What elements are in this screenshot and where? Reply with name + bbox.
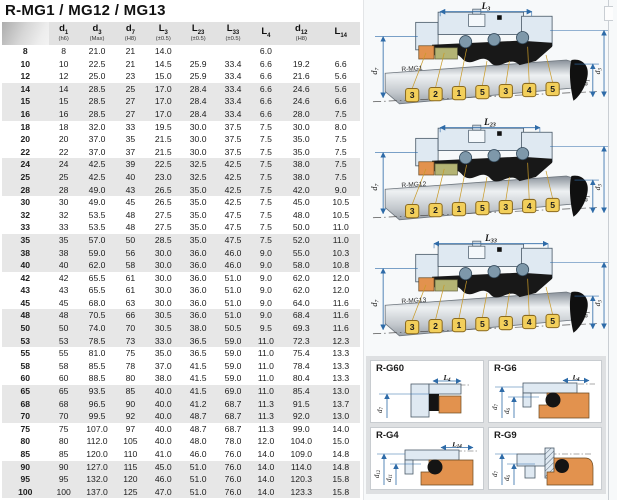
value-cell: 36.5 [181,347,215,360]
value-cell: 93.5 [79,385,115,398]
value-cell: 7.5 [322,158,361,171]
value-cell: 58 [115,259,145,272]
value-cell: 76.0 [215,486,250,499]
value-cell: 33.4 [215,83,250,96]
value-cell: 137.0 [79,486,115,499]
value-cell: 27 [115,95,145,108]
size-cell: 32 [2,209,49,222]
dim-label-L3: L3 [481,2,491,13]
value-cell: 7.5 [251,221,281,234]
value-cell: 36.5 [181,335,215,348]
value-cell: 13.0 [322,385,361,398]
value-cell: 28.4 [181,83,215,96]
value-cell: 33.0 [146,335,181,348]
value-cell: 48.0 [281,209,321,222]
dim-label-d3: d3 [593,184,604,191]
dim-label-L4: L4 [442,375,451,383]
value-cell: 6.6 [251,108,281,121]
size-cell: 38 [2,247,49,260]
value-cell: 75 [115,347,145,360]
svg-text:3: 3 [503,86,508,96]
size-cell: 16 [2,108,49,121]
value-cell: 35 [115,133,145,146]
value-cell: 37.5 [215,133,250,146]
value-cell: 32.0 [79,121,115,134]
value-cell: 11.0 [251,360,281,373]
value-cell: 43 [115,184,145,197]
value-cell: 9.0 [251,272,281,285]
value-cell: 27.5 [146,209,181,222]
value-cell: 11.0 [251,385,281,398]
diagram-r-mg13: L33 d7 d1 d3 R-MG13 32 15 34 5 [366,234,612,348]
value-cell: 99.0 [281,423,321,436]
value-cell: 55 [49,347,79,360]
value-cell: 9.0 [251,284,281,297]
dim-label-d6: d6 [503,407,512,414]
value-cell: 13.0 [322,410,361,423]
panel-label: R-G6 [489,361,601,375]
size-cell: 15 [2,95,49,108]
value-cell: 85.5 [79,360,115,373]
value-cell: 7.5 [322,146,361,159]
value-cell: 76.0 [215,448,250,461]
value-cell: 78 [115,360,145,373]
size-cell: 14 [2,83,49,96]
value-cell: 30.0 [146,284,181,297]
value-cell: 25 [49,171,79,184]
svg-text:2: 2 [433,321,438,331]
value-cell: 47.0 [146,486,181,499]
value-cell: 9.0 [251,309,281,322]
value-cell: 42 [49,272,79,285]
value-cell: 10.5 [322,196,361,209]
dim-label-L4: L4 [571,375,580,383]
size-cell: 50 [2,322,49,335]
value-cell: 28.5 [79,108,115,121]
size-cell: 65 [2,385,49,398]
value-cell: 23.0 [146,171,181,184]
value-cell: 60 [49,372,79,385]
value-cell: 40.0 [146,435,181,448]
svg-text:5: 5 [550,84,555,94]
value-cell: 24.6 [281,83,321,96]
value-cell: 68.7 [215,423,250,436]
value-cell: 19.2 [281,58,321,71]
value-cell: 14.8 [322,461,361,474]
value-cell: 33 [49,221,79,234]
svg-text:2: 2 [433,205,438,215]
size-cell: 85 [2,448,49,461]
value-cell: 14.8 [322,448,361,461]
value-cell: 40.0 [146,410,181,423]
value-cell: 33.4 [215,95,250,108]
value-cell: 90 [115,398,145,411]
value-cell: 12.0 [322,272,361,285]
panel-label: R-G60 [371,361,483,375]
corner-cell [2,22,49,45]
value-cell: 40 [115,171,145,184]
value-cell: 15.0 [146,70,181,83]
value-cell: 13.3 [322,360,361,373]
value-cell: 6.6 [322,95,361,108]
table-row: 9595132.012046.051.076.014.0120.315.8 [2,473,360,486]
svg-text:5: 5 [480,87,485,97]
value-cell: 59.0 [215,347,250,360]
value-cell: 35.0 [146,347,181,360]
value-cell: 48 [49,309,79,322]
value-cell: 14.0 [251,473,281,486]
value-cell: 114.0 [281,461,321,474]
value-cell: 36.0 [181,309,215,322]
diagram-r-mg1: L3 d7 d1 d3 R-MG1 32 15 34 5 [366,2,612,116]
table-row: 484870.56630.536.051.09.068.411.6 [2,309,360,322]
dim-label-d6: d6 [503,474,512,481]
size-cell: 10 [2,58,49,71]
value-cell: 28.5 [79,95,115,108]
size-cell: 22 [2,146,49,159]
value-cell: 41.5 [181,385,215,398]
value-cell: 30.0 [146,272,181,285]
value-cell: 37.0 [79,146,115,159]
svg-text:5: 5 [550,316,555,326]
value-cell: 100 [49,486,79,499]
value-cell: 9.0 [251,297,281,310]
value-cell: 80.4 [281,372,321,385]
dim-label-L23: L23 [483,118,496,129]
value-cell: 12.0 [322,284,361,297]
value-cell: 73 [115,335,145,348]
size-cell: 95 [2,473,49,486]
model-label: R-MG13 [401,297,427,305]
value-cell: 36.0 [181,272,215,285]
value-cell: 51.0 [215,272,250,285]
value-cell: 78.5 [79,335,115,348]
value-cell: 10.5 [322,209,361,222]
value-cell: 61 [115,284,145,297]
table-row: 454568.06330.036.051.09.064.011.6 [2,297,360,310]
size-cell: 30 [2,196,49,209]
value-cell: 11.3 [251,398,281,411]
size-cell: 8 [2,45,49,58]
value-cell: 92 [115,410,145,423]
value-cell: 33.4 [215,58,250,71]
value-cell: 65.5 [79,272,115,285]
table-row: 8080112.010540.048.078.012.0104.015.0 [2,435,360,448]
dim-label-d3: d3 [593,68,604,75]
value-cell: 80 [115,372,145,385]
value-cell: 59.0 [215,335,250,348]
value-cell: 10.3 [322,247,361,260]
value-cell: 8.0 [322,121,361,134]
value-cell: 11.0 [322,234,361,247]
col-L3: L3(±0.5) [146,22,181,45]
table-row: 121225.02315.025.933.46.621.65.6 [2,70,360,83]
value-cell: 69.0 [215,385,250,398]
value-cell: 32 [49,209,79,222]
value-cell: 70.5 [79,309,115,322]
table-row: 585885.57837.041.559.011.078.413.3 [2,360,360,373]
value-cell: 10 [49,58,79,71]
value-cell: 52.0 [281,234,321,247]
value-cell: 37.5 [215,121,250,134]
value-cell: 21 [115,58,145,71]
svg-text:3: 3 [410,90,415,100]
value-cell [215,45,250,58]
value-cell: 51.0 [215,309,250,322]
size-cell: 90 [2,461,49,474]
value-cell: 46.0 [146,473,181,486]
value-cell: 69.3 [281,322,321,335]
value-cell: 7.5 [251,158,281,171]
value-cell: 18 [49,121,79,134]
value-cell: 41.5 [181,360,215,373]
value-cell: 51.0 [215,297,250,310]
value-cell: 7.5 [322,171,361,184]
value-cell: 36.0 [181,259,215,272]
value-cell: 33 [115,121,145,134]
value-cell: 22 [49,146,79,159]
value-cell: 11.6 [322,309,361,322]
size-cell: 33 [2,221,49,234]
value-cell: 15.0 [322,435,361,448]
dimension-table: d1(h6) d3(Max) d7(H8) L3(±0.5) L23(±0.5)… [2,22,360,498]
value-cell: 30.0 [181,133,215,146]
value-cell: 74.0 [79,322,115,335]
value-cell: 11.0 [251,372,281,385]
value-cell: 51.0 [181,486,215,499]
col-d12: d12(H8) [281,22,321,45]
dim-label-d12: d12 [373,469,382,478]
value-cell: 49.0 [79,196,115,209]
value-cell: 125 [115,486,145,499]
value-cell: 28.4 [181,108,215,121]
seat-panel-grid: R-G60 L4 d7 R-G6 [366,356,606,494]
table-row: 333353.54827.535.047.57.550.011.0 [2,221,360,234]
dim-label-d11: d11 [385,474,394,482]
dim-label-d7: d7 [376,406,385,413]
value-cell: 35.0 [181,196,215,209]
value-cell: 21.0 [79,45,115,58]
col-L14: L14 [322,22,361,45]
value-cell: 7.5 [322,108,361,121]
value-cell: 45.0 [146,461,181,474]
value-cell: 112.0 [79,435,115,448]
value-cell: 14.0 [146,45,181,58]
size-cell: 55 [2,347,49,360]
value-cell: 32.5 [181,171,215,184]
table-row: 8585120.011041.046.076.014.0109.014.8 [2,448,360,461]
value-cell: 37.0 [79,133,115,146]
value-cell: 22.5 [146,158,181,171]
dim-label-d7: d7 [370,184,381,191]
value-cell: 47.5 [215,209,250,222]
value-cell: 28.4 [181,95,215,108]
size-cell: 60 [2,372,49,385]
value-cell: 120 [115,473,145,486]
value-cell: 30.0 [146,259,181,272]
seat-drawing-r-g9: d7 d6 [489,442,601,488]
value-cell: 40.0 [146,385,181,398]
value-cell: 50.0 [281,221,321,234]
value-cell: 9.0 [251,247,281,260]
value-cell: 38.0 [281,158,321,171]
value-cell: 110 [115,448,145,461]
size-cell: 40 [2,259,49,272]
value-cell: 6.6 [251,58,281,71]
value-cell: 26.5 [146,184,181,197]
value-cell: 35.0 [281,133,321,146]
size-cell: 68 [2,398,49,411]
value-cell: 75 [49,423,79,436]
value-cell: 41.2 [181,398,215,411]
value-cell: 70 [49,410,79,423]
diagram-r-mg12: L23 d7 d1 d3 R-MG12 32 15 34 5 [366,118,612,232]
value-cell: 107.0 [79,423,115,436]
value-cell: 17.0 [146,83,181,96]
table-row: 383859.05630.036.046.09.055.010.3 [2,247,360,260]
value-cell: 30.0 [281,121,321,134]
seat-drawing-r-g6: L4 d7 d6 [489,375,601,421]
value-cell: 41.0 [146,448,181,461]
value-cell: 37.0 [146,360,181,373]
value-cell: 30.0 [146,247,181,260]
value-cell: 9.5 [251,322,281,335]
value-cell: 5.6 [322,83,361,96]
value-cell: 43 [49,284,79,297]
value-cell: 46.0 [181,448,215,461]
table-row: 303049.04526.535.042.57.545.010.5 [2,196,360,209]
size-cell: 58 [2,360,49,373]
size-cell: 24 [2,158,49,171]
value-cell: 58 [49,360,79,373]
svg-text:3: 3 [503,202,508,212]
value-cell: 35.0 [181,184,215,197]
value-cell: 42.5 [215,196,250,209]
value-cell: 50 [115,234,145,247]
value-cell: 123.3 [281,486,321,499]
value-cell: 21.5 [146,133,181,146]
col-d7: d7(H8) [115,22,145,45]
size-cell: 45 [2,297,49,310]
value-cell: 63 [115,297,145,310]
value-cell: 17.0 [146,108,181,121]
size-cell: 35 [2,234,49,247]
svg-text:5: 5 [550,200,555,210]
value-cell: 127.0 [79,461,115,474]
table-row: 151528.52717.028.433.46.624.66.6 [2,95,360,108]
value-cell: 49.0 [79,184,115,197]
value-cell: 81.0 [79,347,115,360]
value-cell: 96.5 [79,398,115,411]
dimension-table-section: R-MG1 / MG12 / MG13 d1(h6) d3(Max) d7(H8… [0,0,363,500]
table-row: 505074.07030.538.050.59.569.311.6 [2,322,360,335]
value-cell: 7.5 [251,196,281,209]
value-cell [181,45,215,58]
value-cell: 30.0 [181,121,215,134]
value-cell: 46.0 [215,259,250,272]
value-cell: 50 [49,322,79,335]
value-cell: 90 [49,461,79,474]
value-cell: 7.5 [322,133,361,146]
page-frame-notch [604,6,613,21]
value-cell: 61 [115,272,145,285]
table-row: 686896.59040.041.268.711.391.513.7 [2,398,360,411]
svg-text:2: 2 [433,89,438,99]
svg-text:5: 5 [480,203,485,213]
col-L23: L23(±0.5) [181,22,215,45]
value-cell: 72.3 [281,335,321,348]
value-cell: 12.0 [251,435,281,448]
value-cell: 115 [115,461,145,474]
value-cell: 11.6 [322,322,361,335]
value-cell: 120.0 [79,448,115,461]
value-cell: 14.5 [146,58,181,71]
value-cell: 48.0 [181,435,215,448]
value-cell: 13.7 [322,398,361,411]
value-cell: 11.3 [251,423,281,436]
svg-text:4: 4 [527,201,532,211]
value-cell: 21.6 [281,70,321,83]
value-cell: 28.5 [146,234,181,247]
value-cell: 53 [49,335,79,348]
value-cell: 78.4 [281,360,321,373]
table-row: 9090127.011545.051.076.014.0114.014.8 [2,461,360,474]
table-row: 707099.59240.048.768.711.392.013.0 [2,410,360,423]
value-cell: 40.0 [146,423,181,436]
value-cell: 68.7 [215,398,250,411]
panel-r-g4: R-G4 L14 d12 d11 [370,427,484,490]
size-cell: 12 [2,70,49,83]
value-cell: 28.5 [79,83,115,96]
svg-text:3: 3 [410,206,415,216]
value-cell: 9.0 [322,184,361,197]
col-d3: d3(Max) [79,22,115,45]
value-cell: 50.5 [215,322,250,335]
value-cell: 17.0 [146,95,181,108]
value-cell: 120.3 [281,473,321,486]
value-cell: 7.5 [251,121,281,134]
value-cell: 14.0 [251,461,281,474]
value-cell: 7.5 [251,133,281,146]
value-cell: 48.7 [181,410,215,423]
table-row: 141428.52517.028.433.46.624.65.6 [2,83,360,96]
table-row: 404062.05830.036.046.09.058.010.8 [2,259,360,272]
table-row: 434365.56130.036.051.09.062.012.0 [2,284,360,297]
value-cell: 38.0 [281,171,321,184]
value-cell: 25.9 [181,70,215,83]
value-cell: 59.0 [215,360,250,373]
value-cell: 27.5 [146,221,181,234]
value-cell: 42.5 [79,171,115,184]
value-cell: 22.5 [79,58,115,71]
size-cell: 100 [2,486,49,499]
value-cell: 38.0 [146,372,181,385]
value-cell: 13.3 [322,347,361,360]
value-cell: 24.6 [281,95,321,108]
value-cell: 62.0 [79,259,115,272]
value-cell: 42.5 [215,158,250,171]
table-row: 353557.05028.535.047.57.552.011.0 [2,234,360,247]
dim-label-d7: d7 [491,470,500,477]
value-cell: 42.5 [215,171,250,184]
value-cell: 6.6 [322,58,361,71]
size-cell: 70 [2,410,49,423]
value-cell: 53.5 [79,221,115,234]
value-cell: 35.0 [181,234,215,247]
panel-r-g6: R-G6 L4 d7 d6 [488,360,602,423]
value-cell: 109.0 [281,448,321,461]
table-row: 8821.02114.06.0 [2,45,360,58]
